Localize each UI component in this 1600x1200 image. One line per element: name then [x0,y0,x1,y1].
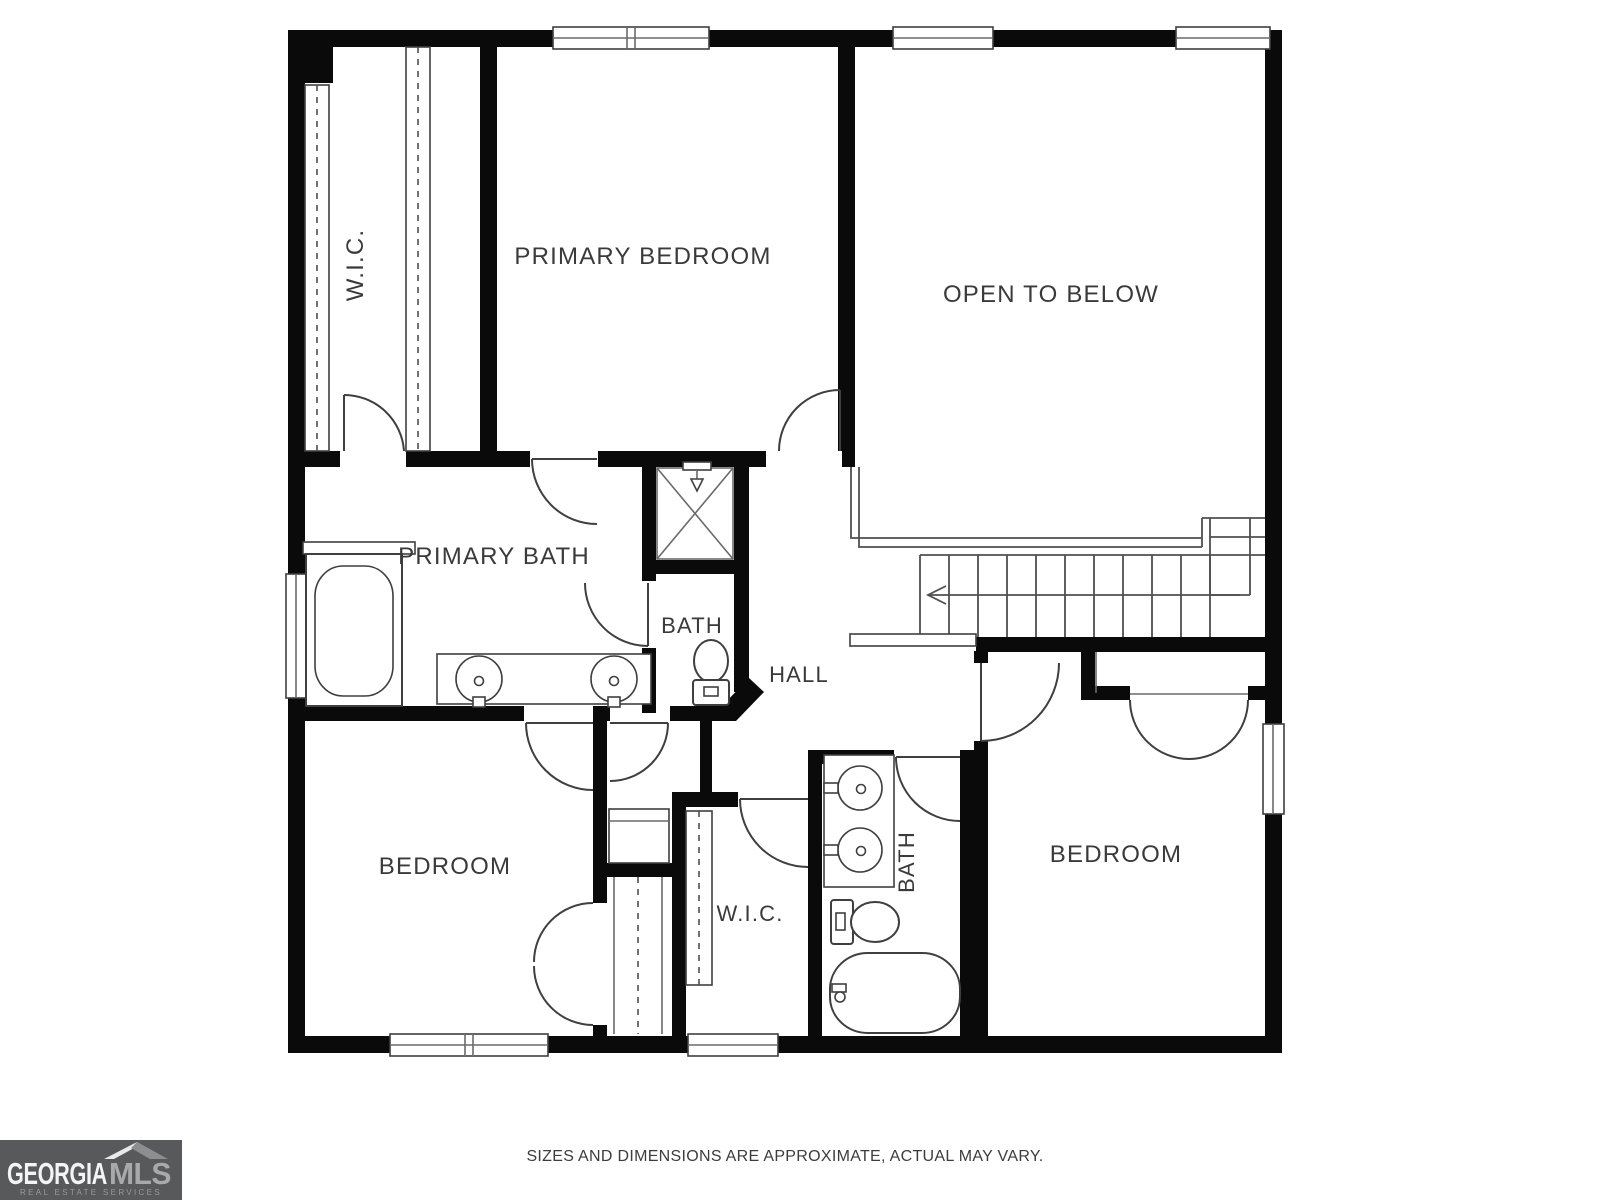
door-bedroom-right [981,663,1059,741]
room-label-bedroom-left: BEDROOM [379,853,511,880]
closet-fittings [305,47,1248,1034]
toilet-bath-bottom-icon [831,900,899,944]
walls [288,30,1282,1053]
floor-plan-drawing: W.I.C. PRIMARY BEDROOM OPEN TO BELOW PRI… [0,0,1600,1200]
bifold-doors-bedroom-left-closet [534,903,593,1025]
logo-brand-secondary: MLS [109,1156,171,1191]
window-primary-bath [286,574,307,698]
door-bath-bottom [896,757,960,821]
stair-railing [850,634,976,646]
windows [286,27,1284,1056]
room-label-primary-bedroom: PRIMARY BEDROOM [514,243,771,270]
window-bedroom-right [1263,724,1284,814]
floor-plan-page: W.I.C. PRIMARY BEDROOM OPEN TO BELOW PRI… [0,0,1600,1200]
room-label-wic-bottom: W.I.C. [716,901,783,926]
georgia-mls-logo: GEORGIA MLS REAL ESTATE SERVICES [0,1140,182,1200]
door-bedroom-left [526,723,593,790]
bathtub-bath-bottom-icon [830,953,960,1033]
door-primary-bath [532,459,597,524]
door-wic-top [344,395,404,451]
room-labels: W.I.C. PRIMARY BEDROOM OPEN TO BELOW PRI… [342,229,1182,926]
room-label-bath-bottom: BATH [894,831,919,893]
window-primary-bedroom [553,27,709,49]
room-label-bath-middle: BATH [661,613,723,638]
vanity-bath-bottom-icon [824,755,894,887]
window-bedroom-left [390,1034,548,1056]
disclaimer-text: SIZES AND DIMENSIONS ARE APPROXIMATE, AC… [526,1148,1043,1165]
room-label-bedroom-right: BEDROOM [1050,841,1182,868]
room-label-primary-bath: PRIMARY BATH [398,543,590,570]
room-label-wic-top: W.I.C. [342,229,369,302]
bifold-doors-bedroom-right-closet [1130,700,1248,759]
stair-direction-arrow-icon [928,586,1240,604]
door-vestibule [610,723,668,781]
logo-tagline: REAL ESTATE SERVICES [20,1187,162,1197]
window-open-below-right [1176,27,1270,49]
window-wic-bottom [688,1034,778,1056]
window-open-below-left [893,27,993,49]
toilet-middle-icon [693,640,729,705]
staircase [850,467,1265,646]
door-primary-bedroom [779,390,840,451]
room-label-hall: HALL [769,662,829,687]
shower-icon [657,462,733,559]
door-wic-bottom [740,799,808,867]
vanity-primary-icon [437,654,651,707]
door-bath-middle [585,583,648,646]
logo-brand-primary: GEORGIA [7,1156,107,1191]
room-label-open-to-below: OPEN TO BELOW [943,281,1159,308]
